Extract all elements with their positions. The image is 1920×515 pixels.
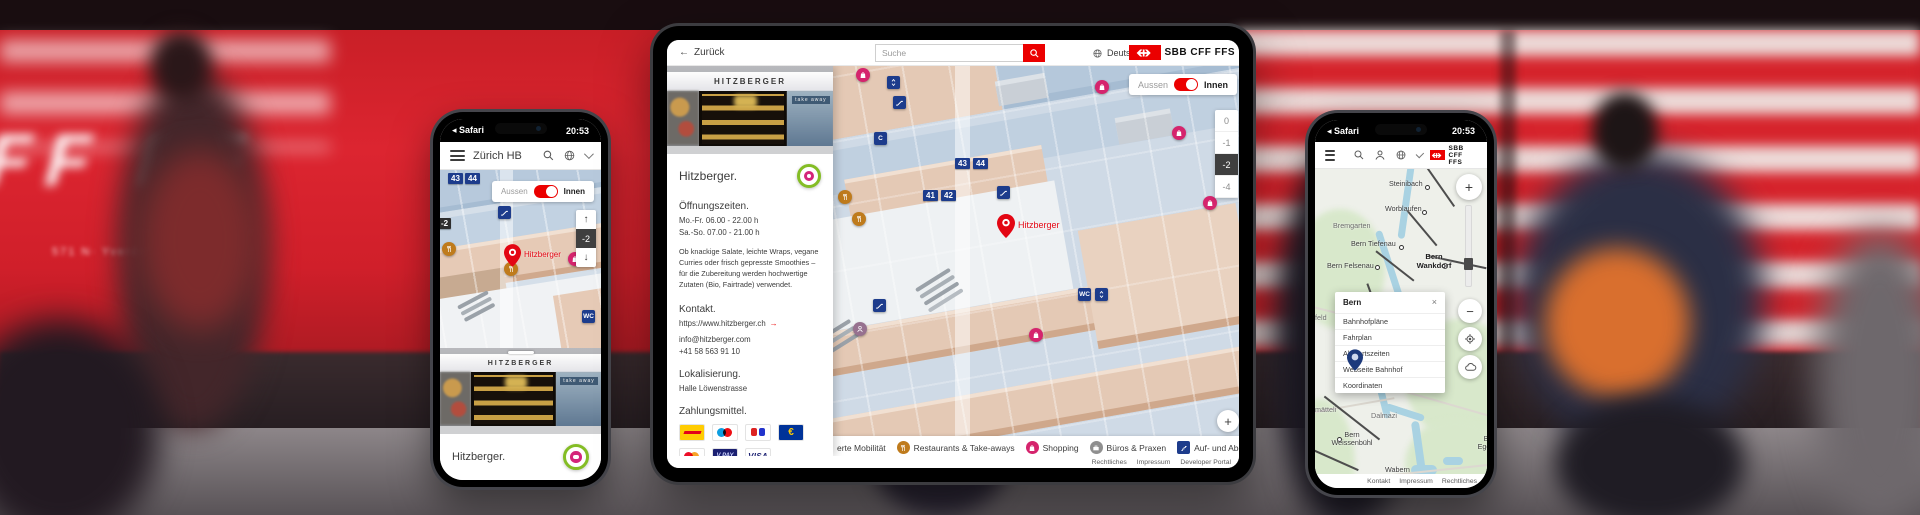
restaurant-icon[interactable]	[442, 242, 456, 256]
left-phone-station-map[interactable]: 43 44 -2 WC Hitzberger Aussen Innen ↑ -2	[440, 170, 601, 348]
blurred-pedestrian-right-bag	[1545, 248, 1690, 398]
footer-link-rechtliches[interactable]: Rechtliches	[1092, 459, 1127, 466]
shopping-icon	[1026, 441, 1039, 454]
sbb-logo: SBB CFF FFS	[1129, 45, 1236, 60]
hitzberger-logo-badge	[563, 444, 589, 470]
station-title: Zürich HB	[473, 150, 522, 162]
hours-heading: Öffnungszeiten.	[679, 201, 821, 212]
camera-dot	[536, 126, 541, 131]
footer-link-rechtliches[interactable]: Rechtliches	[1442, 478, 1477, 485]
website-link[interactable]: https://www.hitzberger.ch→	[679, 319, 821, 328]
map-label-truncated: chermätteli	[1315, 405, 1336, 414]
photo-floor	[440, 426, 601, 434]
platform-badge: 44	[973, 158, 988, 169]
station-dot	[1399, 245, 1404, 250]
footer-link-impressum[interactable]: Impressum	[1399, 478, 1433, 485]
restaurants-icon	[897, 441, 910, 454]
tablet-footer: Rechtliches Impressum Developer Portal	[667, 456, 1239, 468]
camera-dot	[1416, 127, 1421, 132]
right-phone-device: ◂ Safari 20:53 SBB CFF FFS	[1308, 113, 1494, 495]
weather-cloud-icon[interactable]	[1458, 355, 1482, 379]
restaurant-icon[interactable]	[838, 190, 852, 204]
location-heading: Lokalisierung.	[679, 369, 821, 380]
map-label: Bremgarten	[1333, 221, 1371, 230]
blurred-pedestrian-left-jacket	[140, 150, 260, 330]
blurred-pedestrian-left-head	[150, 30, 212, 100]
search-icon[interactable]	[1353, 149, 1365, 161]
map-label: Bern Felsenau	[1327, 261, 1374, 270]
escalator-icon[interactable]	[498, 206, 511, 219]
filter-stairs[interactable]: Auf- und Abgänge	[1177, 441, 1239, 454]
globe-icon	[1092, 48, 1103, 59]
floor-option[interactable]: 0	[1215, 110, 1238, 132]
language-globe-icon[interactable]	[563, 149, 576, 162]
chevron-down-icon[interactable]	[1415, 149, 1423, 157]
map-label: Worblaufen	[1385, 204, 1422, 213]
back-button[interactable]: ←Zurück	[679, 47, 725, 58]
takeaway-sign: take away	[792, 96, 830, 104]
sbb-logo: SBB CFF FFS	[1430, 145, 1477, 166]
sheet-drag-handle[interactable]	[508, 351, 534, 354]
search-bar	[875, 44, 1045, 62]
shop-sign-text: HITZBERGER	[714, 77, 786, 86]
filter-offices[interactable]: Büros & Praxen	[1090, 441, 1167, 454]
service-icon[interactable]	[853, 322, 867, 336]
storefront-photo: HITZBERGER take away	[440, 348, 601, 434]
floor-option-selected[interactable]: -2	[1215, 154, 1238, 176]
station-dot	[1425, 185, 1430, 190]
map-label: Bern Weissenbühl	[1327, 431, 1377, 448]
sbb-emblem-icon	[1430, 150, 1445, 160]
floor-selector: 0 -1 -2 -4	[1215, 110, 1238, 198]
left-phone-screen: ◂ Safari 20:53 Zürich HB	[440, 119, 601, 480]
filter-label: Restaurants & Take-aways	[914, 443, 1015, 453]
poi-filter-bar: erte Mobilität Restaurants & Take-aways …	[827, 436, 1239, 456]
filter-reduced-mobility[interactable]: erte Mobilität	[837, 443, 886, 453]
euro-cash-icon: €	[778, 424, 804, 441]
map-label: Bern Tiefenau	[1351, 239, 1396, 248]
poi-description: Ob knackige Salate, leichte Wraps, vegan…	[679, 247, 821, 291]
search-input[interactable]	[875, 44, 1023, 62]
notch	[1375, 124, 1427, 135]
wc-icon[interactable]: WC	[582, 310, 595, 323]
photo-floor	[667, 146, 833, 154]
clock: 20:53	[566, 126, 589, 136]
zoom-slider[interactable]	[1465, 205, 1472, 287]
location-pin	[997, 214, 1014, 237]
right-phone-status-bar: ◂ Safari 20:53	[1315, 120, 1487, 142]
platform-badge: 42	[941, 190, 956, 201]
phone-link[interactable]: +41 58 563 91 10	[679, 347, 821, 356]
floor-down-button[interactable]: ↓	[576, 248, 596, 267]
user-icon[interactable]	[1374, 149, 1386, 161]
right-phone-app-bar: SBB CFF FFS	[1315, 142, 1487, 169]
footer-link-impressum[interactable]: Impressum	[1137, 459, 1171, 466]
toggle-switch[interactable]	[534, 185, 558, 198]
zoom-in-button[interactable]: +	[1456, 174, 1482, 200]
map-label-wankdorf: Bern Wankdorf	[1411, 253, 1457, 270]
contact-heading: Kontakt.	[679, 304, 821, 315]
filter-label: Shopping	[1043, 443, 1079, 453]
search-button[interactable]	[1023, 44, 1045, 62]
photo-shop-interior	[471, 372, 556, 427]
floor-option[interactable]: -4	[1215, 176, 1238, 198]
filter-label: Büros & Praxen	[1107, 443, 1167, 453]
location-value: Halle Löwenstrasse	[679, 384, 821, 393]
right-phone-screen: ◂ Safari 20:53 SBB CFF FFS	[1315, 120, 1487, 488]
photo-shop-interior	[699, 91, 787, 147]
poi-title: Hitzberger.	[679, 169, 737, 183]
poi-title: Hitzberger.	[452, 451, 505, 463]
shopping-icon[interactable]	[1203, 196, 1217, 210]
zoom-slider-handle[interactable]	[1464, 258, 1473, 270]
popup-title: Bern	[1343, 298, 1361, 307]
zoom-out-button[interactable]: −	[1458, 299, 1482, 323]
indoor-outdoor-toggle[interactable]: Aussen Innen	[492, 181, 594, 202]
back-arrow-icon: ←	[679, 47, 689, 58]
shopping-icon[interactable]	[1029, 328, 1043, 342]
platform-badge: 43	[955, 158, 970, 169]
location-pin	[504, 244, 521, 267]
left-phone-status-bar: ◂ Safari 20:53	[440, 119, 601, 142]
sector-c-badge: C	[874, 132, 887, 145]
popup-item-bahnhofplaene[interactable]: Bahnhofpläne	[1335, 313, 1445, 329]
map-label: Steinibach	[1389, 179, 1423, 188]
toggle-label-aussen: Aussen	[501, 187, 528, 196]
menu-icon[interactable]	[450, 150, 465, 161]
zoom-in-button[interactable]: +	[1217, 410, 1239, 432]
left-phone-device: ◂ Safari 20:53 Zürich HB	[433, 112, 608, 487]
floor-current: -2	[576, 229, 596, 248]
maestro-icon	[712, 424, 738, 441]
close-icon[interactable]: ×	[1432, 297, 1437, 307]
external-link-arrow-icon: →	[770, 319, 778, 328]
floor-stepper[interactable]: ↑ -2 ↓	[576, 210, 596, 267]
photo-left-shop	[440, 372, 471, 425]
safari-back-label[interactable]: ◂ Safari	[452, 125, 484, 136]
hours-weekday: Mo.-Fr. 06.00 - 22.00 h	[679, 216, 821, 225]
left-phone-app-bar: Zürich HB	[440, 142, 601, 170]
platform-badge: 41	[923, 190, 938, 201]
sbb-emblem-icon	[1129, 45, 1161, 60]
safari-back-label[interactable]: ◂ Safari	[1327, 126, 1359, 137]
clock: 20:53	[1452, 126, 1475, 136]
platform-badge: 44	[465, 173, 480, 184]
shop-sign-text: HITZBERGER	[488, 360, 554, 367]
filter-shopping[interactable]: Shopping	[1026, 441, 1079, 454]
filter-restaurants[interactable]: Restaurants & Take-aways	[897, 441, 1015, 454]
blurred-pedestrian-right-head	[1592, 92, 1658, 170]
sbb-logo-text: SBB CFF FFS	[1449, 145, 1477, 166]
footer-link-developer-portal[interactable]: Developer Portal	[1180, 459, 1231, 466]
sbb-logo-text: SBB CFF FFS	[1165, 47, 1236, 58]
language-globe-icon[interactable]	[1395, 149, 1407, 161]
map-light-band	[955, 66, 970, 456]
toggle-label-innen: Innen	[564, 187, 585, 196]
menu-icon[interactable]	[1325, 150, 1335, 161]
toggle-label-innen: Innen	[1204, 80, 1228, 90]
email-link[interactable]: info@hitzberger.com	[679, 335, 821, 344]
toggle-switch[interactable]	[1174, 78, 1198, 91]
map-label: Wabern	[1385, 465, 1410, 474]
shopping-icon[interactable]	[1095, 80, 1109, 94]
shopping-icon[interactable]	[856, 68, 870, 82]
station-popup: Bern × Bahnhofpläne Fahrplan Abfahrtszei…	[1335, 292, 1445, 393]
platform-badge: 43	[448, 173, 463, 184]
escalator-icon[interactable]	[893, 96, 906, 109]
left-phone-bottom-sheet[interactable]: HITZBERGER take away Hitzberger.	[440, 348, 601, 480]
railway-line	[1407, 210, 1438, 246]
locate-icon[interactable]	[1458, 327, 1482, 351]
shopping-icon[interactable]	[1172, 126, 1186, 140]
pin-label: Hitzberger	[524, 250, 561, 259]
tablet-screen: ←Zurück Deutsch SBB CFF FFS	[667, 40, 1239, 468]
popup-item-fahrplan[interactable]: Fahrplan	[1335, 329, 1445, 345]
photo-left-shop	[667, 91, 699, 146]
tablet-detail-panel: HITZBERGER take away Hitzberger. Öffnung…	[667, 66, 833, 456]
hitzberger-logo-badge	[797, 164, 821, 188]
level-edge-badge: -2	[440, 218, 451, 229]
right-phone-city-map[interactable]: Steinibach Worblaufen Bremgarten Bern Ti…	[1315, 169, 1487, 474]
tablet-header: ←Zurück Deutsch SBB CFF FFS	[667, 40, 1239, 66]
station-dot	[1422, 210, 1427, 215]
storefront-photo: HITZBERGER take away	[667, 66, 833, 154]
indoor-outdoor-toggle[interactable]: Aussen Innen	[1129, 74, 1237, 95]
search-icon[interactable]	[542, 149, 555, 162]
floor-up-button[interactable]: ↑	[576, 210, 596, 229]
pin-label: Hitzberger	[1018, 220, 1060, 230]
right-phone-footer: Kontakt Impressum Rechtliches	[1315, 474, 1487, 488]
footer-link-kontakt[interactable]: Kontakt	[1367, 478, 1390, 485]
filter-label: Auf- und Abgänge	[1194, 443, 1239, 453]
hours-weekend: Sa.-So. 07.00 - 21.00 h	[679, 228, 821, 237]
takeaway-sign: take away	[560, 377, 598, 385]
briefcase-icon	[1090, 441, 1103, 454]
payment-heading: Zahlungsmittel.	[679, 406, 821, 417]
reka-icon	[745, 424, 771, 441]
elevator-icon[interactable]	[887, 76, 900, 89]
city-location-pin	[1347, 349, 1364, 372]
map-pond	[1443, 457, 1463, 465]
train-door-gap	[1500, 30, 1516, 375]
escalator-icon[interactable]	[997, 186, 1010, 199]
floor-option[interactable]: -1	[1215, 132, 1238, 154]
station-dot	[1375, 265, 1380, 270]
map-label-truncated: ufeld	[1315, 313, 1327, 322]
popup-item-koordinaten[interactable]: Koordinaten	[1335, 377, 1445, 393]
chevron-down-icon[interactable]	[584, 149, 594, 159]
tablet-device: ←Zurück Deutsch SBB CFF FFS	[653, 26, 1253, 482]
map-label: Dalmazi	[1371, 411, 1397, 420]
promo-composite: FF FF 571 N· Yverdon R1 25.02.13 ◂ Safar…	[0, 0, 1920, 515]
map-label-truncated: Be Egghö	[1473, 435, 1487, 452]
wc-icon[interactable]: WC	[1078, 288, 1091, 301]
escalator-icon[interactable]	[873, 299, 886, 312]
notch	[495, 123, 547, 134]
elevator-icon[interactable]	[1095, 288, 1108, 301]
stairs-icon	[1177, 441, 1190, 454]
restaurant-icon[interactable]	[852, 212, 866, 226]
postfinance-icon	[679, 424, 705, 441]
toggle-label-aussen: Aussen	[1138, 80, 1168, 90]
filter-label: erte Mobilität	[837, 443, 886, 453]
